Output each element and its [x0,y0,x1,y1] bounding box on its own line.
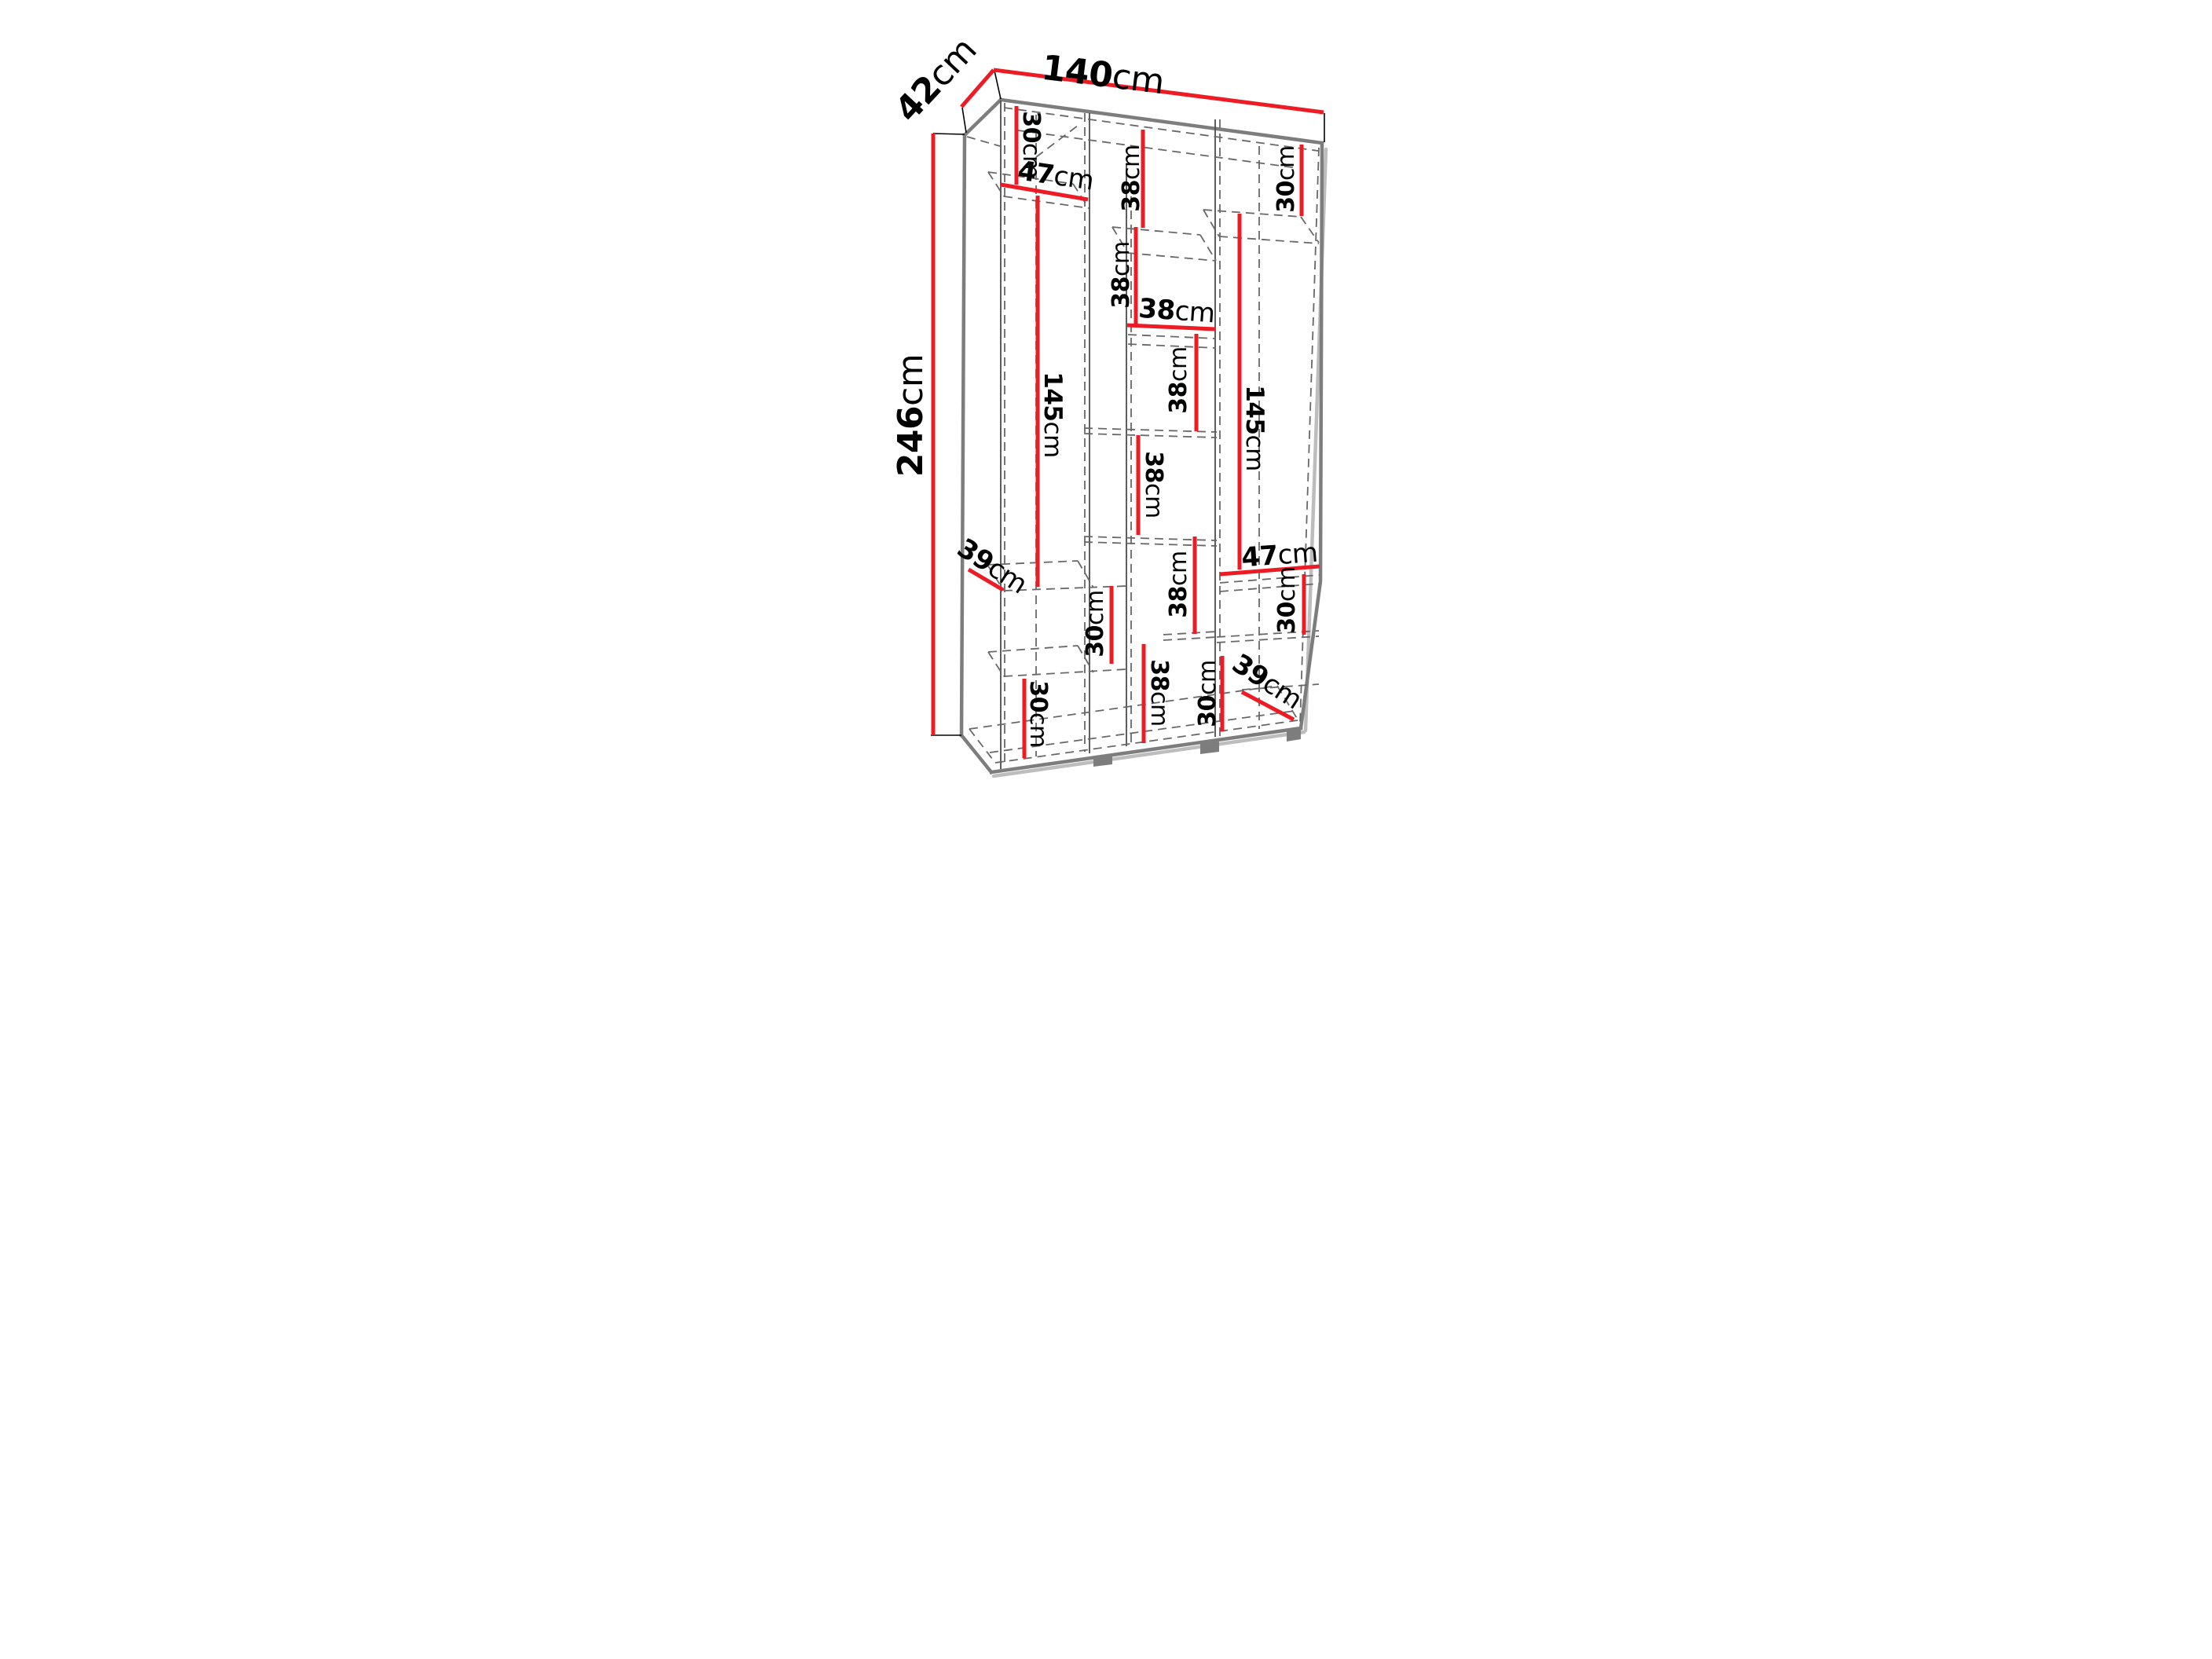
dim-label-mid-section-3: 38cm [1165,346,1192,413]
dim-label-mid-bottom-section: 38cm [1145,659,1173,726]
wardrobe-dimension-diagram: 42cm 140cm 246cm 30cm 47cm 38cm 30cm 38c… [553,0,1659,829]
dim-label-mid-section-2: 38cm [1108,241,1135,308]
dim-label-left-bottom-section: 30cm [1024,680,1052,747]
dim-label-left-tall-section: 145cm [1038,372,1067,457]
dim-label-depth-top: 42cm [888,30,984,130]
dim-label-mid-shelf-width: 38cm [1137,293,1216,330]
dim-label-right-top-section: 30cm [1273,145,1300,212]
dim-label-right-mid-section: 30cm [1273,566,1301,633]
dim-label-mid-section-1: 38cm [1118,145,1145,211]
dimension-labels: 42cm 140cm 246cm 30cm 47cm 38cm 30cm 38c… [888,30,1319,748]
dim-label-right-tall-section: 145cm [1240,385,1269,471]
dim-label-right-bottom-section: 30cm [1194,660,1221,727]
dim-label-mid-section-4: 38cm [1140,451,1167,518]
dim-label-mid-section-5: 38cm [1165,551,1192,617]
dim-label-width-top: 140cm [1039,48,1166,103]
diagram-canvas: 42cm 140cm 246cm 30cm 47cm 38cm 30cm 38c… [553,0,1659,829]
dim-label-left-mid-section: 30cm [1082,590,1109,657]
dim-label-height-left: 246cm [891,354,931,477]
